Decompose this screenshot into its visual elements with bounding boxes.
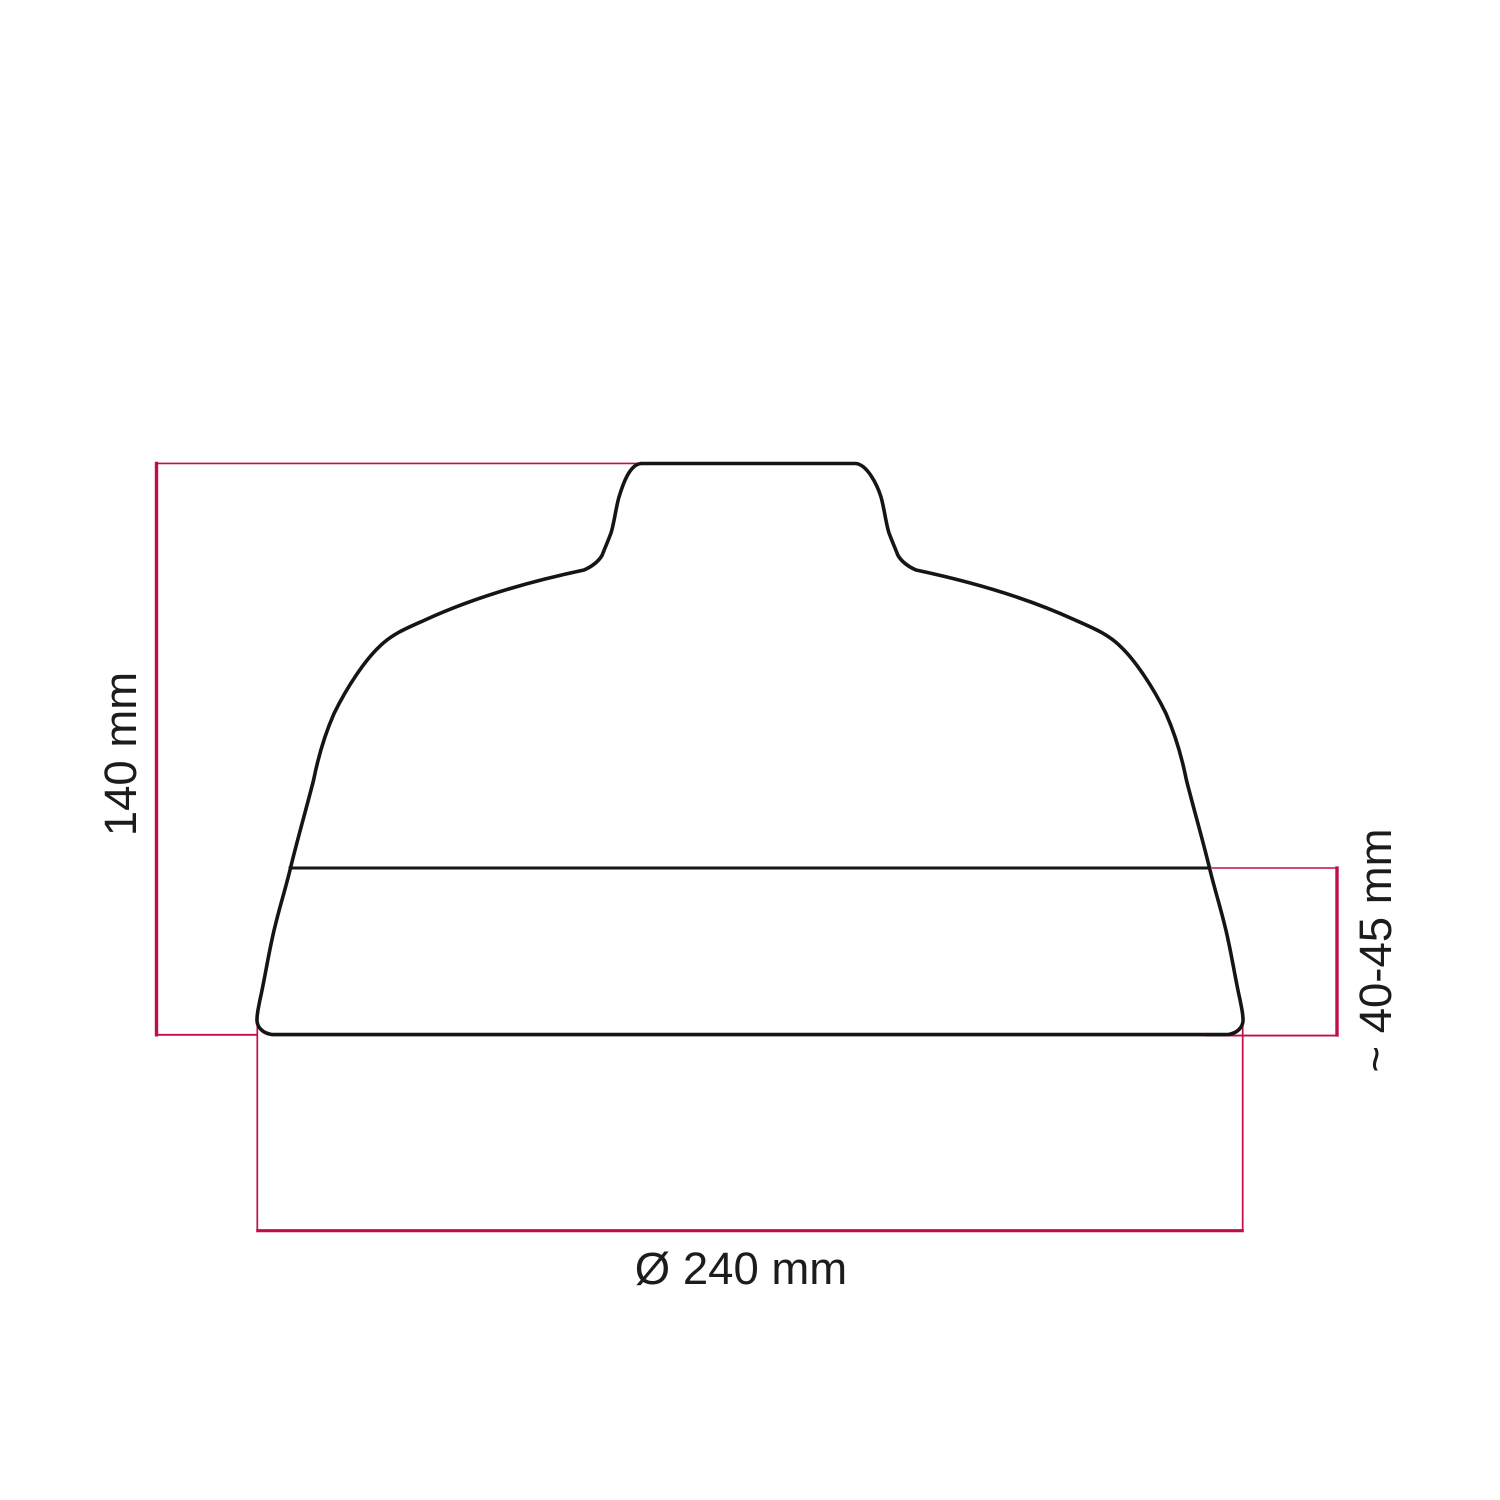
svg-text:~ 40-45 mm: ~ 40-45 mm (1350, 828, 1401, 1072)
svg-text:140 mm: 140 mm (95, 672, 146, 836)
svg-text:Ø 240 mm: Ø 240 mm (635, 1243, 847, 1294)
